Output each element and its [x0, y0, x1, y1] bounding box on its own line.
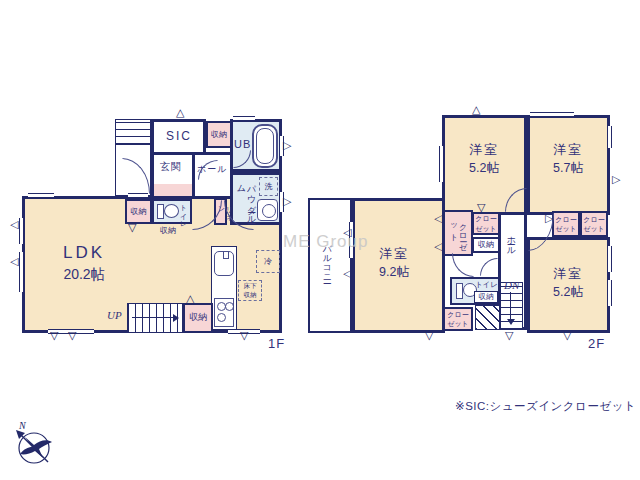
compass-bird-logo: N	[10, 420, 56, 470]
vent-triangle-icon: ◁	[434, 213, 442, 224]
vent-triangle-icon: ▽	[563, 330, 571, 341]
bathtub-icon	[252, 124, 278, 168]
vent-triangle-icon: ▽	[50, 330, 58, 341]
window	[607, 280, 612, 306]
room-name: 洋室	[366, 246, 422, 262]
vent-triangle-icon: ◁	[434, 241, 442, 252]
stairs-dn-arrow	[510, 292, 511, 320]
closet-label: クローゼット	[474, 214, 498, 232]
north-label: N	[18, 420, 27, 431]
closet-label: クローゼット	[554, 215, 578, 233]
watermark: ME Group	[283, 231, 368, 252]
vent-triangle-icon: ◁	[10, 219, 18, 230]
floor-plan-canvas: 収納 洗 収納 トイレ 収納 リネン	[0, 0, 640, 480]
toilet-2f-label: トイレ	[475, 280, 498, 289]
closet-label: クローゼット	[446, 310, 470, 328]
washer-box: 洗	[259, 177, 278, 196]
room-name: 洋室	[454, 142, 514, 158]
stove-icon	[214, 298, 234, 327]
vent-triangle-icon: ▷	[283, 140, 291, 151]
toilet-bowl-icon	[164, 204, 179, 218]
toilet-label: トイレ	[179, 200, 187, 224]
vent-triangle-icon: ◁	[10, 256, 18, 267]
toilet-tank-icon	[157, 204, 164, 219]
toilet-tank-icon	[456, 283, 463, 299]
fridge-label: 冷	[264, 257, 272, 267]
vent-triangle-icon: ▽	[128, 222, 136, 233]
storage-label: 収納	[189, 312, 207, 323]
closet-box-ne1: クローゼット	[552, 211, 580, 237]
ldk-size: 20.2帖	[42, 266, 126, 284]
room-name: 洋室	[538, 142, 598, 158]
storage-label: 収納	[479, 292, 494, 301]
washer-label: 洗	[265, 182, 273, 192]
storage-label: 収納	[211, 130, 227, 140]
ldk-label: LDK 20.2帖	[42, 242, 126, 284]
fridge-box: 冷	[256, 250, 280, 273]
vent-triangle-icon: ▽	[477, 202, 485, 213]
vent-triangle-icon: △	[176, 107, 184, 118]
storage-box-entry: 収納	[206, 121, 232, 148]
closet-box-ne2: クローゼット	[580, 211, 608, 237]
storage-box-mid: 収納	[472, 237, 500, 253]
room-size: 9.2帖	[366, 265, 422, 281]
storage-label: 収納	[478, 240, 494, 250]
stairs-dn-arrowhead-icon	[507, 319, 515, 325]
stairs-up-arrowhead-icon	[173, 314, 179, 322]
powder-sink-icon	[257, 199, 278, 221]
sic-label: SIC	[166, 129, 192, 144]
window	[607, 246, 612, 272]
ldk-name: LDK	[42, 242, 126, 263]
vent-triangle-icon: ▷	[612, 174, 620, 185]
underfloor-storage-box: 床下収納	[238, 280, 262, 301]
closet-box-tall: クローゼット	[443, 210, 473, 256]
window	[28, 193, 54, 198]
hall-2f-label: ホール	[506, 230, 516, 262]
window	[19, 218, 24, 244]
stairs-up-arrow	[132, 317, 174, 318]
kitchen-sink-icon	[214, 251, 234, 276]
closet-box-mid: クローゼット	[472, 212, 500, 235]
room-2f-ne-label: 洋室 5.7帖	[538, 142, 598, 177]
closet-label: クローゼット	[582, 215, 606, 233]
vent-triangle-icon: ▷	[283, 196, 291, 207]
room-size: 5.7帖	[538, 161, 598, 177]
storage-label: 収納	[131, 207, 147, 217]
sic-footnote: ※SIC:シューズインクローゼット	[455, 399, 636, 413]
porch-steps	[115, 119, 151, 145]
storage-box-stairs: 収納	[183, 303, 213, 333]
room-2f-se-label: 洋室 5.2帖	[538, 266, 598, 301]
up-label: UP	[107, 309, 122, 323]
window	[233, 116, 255, 121]
vent-triangle-icon: ▽	[425, 330, 433, 341]
door-arc	[452, 253, 474, 277]
underfloor-storage-label: 床下収納	[243, 282, 258, 299]
room-2f-sw-label: 洋室 9.2帖	[366, 246, 422, 281]
closet-label: クローゼット	[449, 218, 467, 248]
vent-triangle-icon: ◁	[343, 268, 351, 279]
genkan-label: 玄関	[160, 161, 182, 174]
dn-label: DN	[504, 279, 519, 293]
vent-triangle-icon: △	[472, 104, 480, 115]
vent-triangle-icon: ▽	[68, 330, 76, 341]
window	[530, 112, 574, 117]
vent-triangle-icon: ▽	[240, 330, 248, 341]
vent-triangle-icon: ▽	[505, 330, 513, 341]
storage-box-toilet: 収納	[474, 291, 498, 303]
floor-2-label: 2F	[588, 336, 605, 352]
room-size: 5.2帖	[454, 161, 514, 177]
room-name: 洋室	[538, 266, 598, 282]
window	[19, 252, 24, 292]
closet-box-sw: クローゼット	[443, 307, 473, 331]
storage-under-label: 収納	[160, 226, 176, 236]
room-2f-nw-label: 洋室 5.2帖	[454, 142, 514, 177]
room-size: 5.2帖	[538, 285, 598, 301]
genkan-step	[154, 184, 194, 196]
window	[439, 146, 444, 182]
window	[607, 126, 612, 148]
vent-triangle-icon: △	[186, 293, 194, 304]
stairs-dn-bottom	[475, 305, 500, 330]
floor-1-label: 1F	[268, 336, 285, 352]
door-arc	[480, 258, 498, 276]
